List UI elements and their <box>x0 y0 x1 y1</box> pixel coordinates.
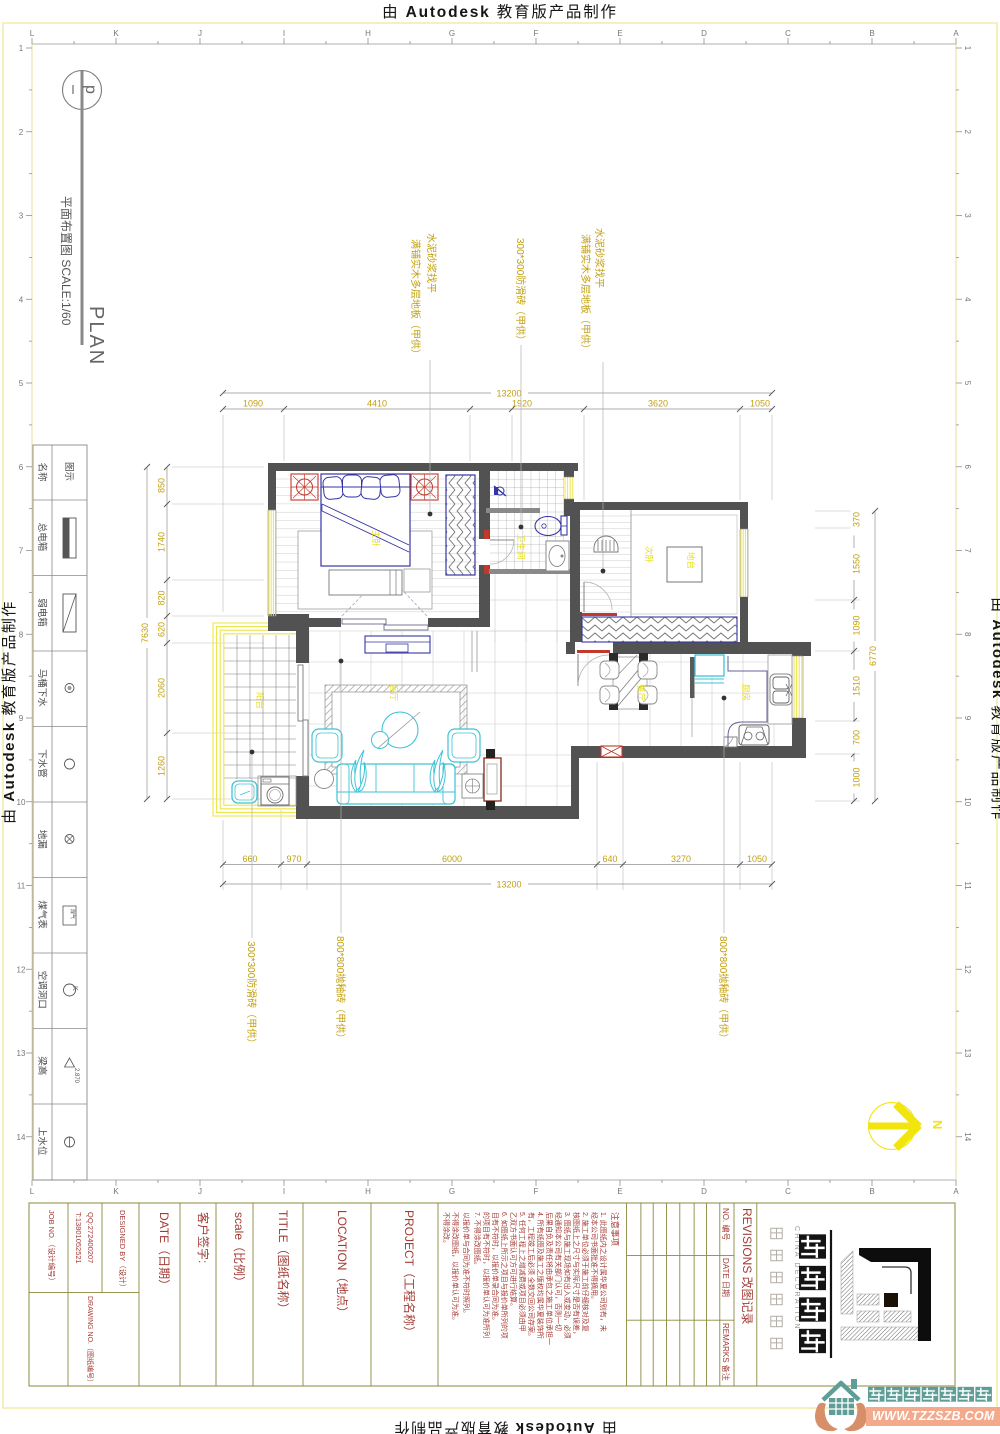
svg-text:次卧: 次卧 <box>644 546 654 564</box>
svg-text:1: 1 <box>963 46 972 51</box>
svg-text:1050: 1050 <box>747 854 767 864</box>
svg-text:T:13801052521: T:13801052521 <box>74 1212 83 1264</box>
svg-text:3: 3 <box>963 213 972 218</box>
svg-text:4: 4 <box>963 297 972 302</box>
svg-text:1260: 1260 <box>157 756 167 776</box>
svg-text:经本公司书面批准不得摘用。: 经本公司书面批准不得摘用。 <box>590 1212 599 1303</box>
svg-text:G: G <box>449 1187 455 1196</box>
svg-text:13: 13 <box>963 1049 972 1058</box>
svg-text:2: 2 <box>963 130 972 135</box>
svg-text:空调洞口: 空调洞口 <box>36 971 48 1009</box>
svg-text:C: C <box>785 1187 791 1196</box>
svg-text:厨房: 厨房 <box>741 684 751 701</box>
svg-text:1090: 1090 <box>852 615 862 635</box>
svg-text:J: J <box>198 1187 202 1196</box>
svg-text:6000: 6000 <box>442 854 462 864</box>
svg-text:D: D <box>701 29 707 38</box>
svg-text:5. 任何工程上之增减费或项目必须由甲: 5. 任何工程上之增减费或项目必须由甲 <box>518 1212 527 1332</box>
svg-text:B: B <box>869 1187 874 1196</box>
svg-text:G: G <box>449 29 455 38</box>
svg-text:CHINA DECORATION: CHINA DECORATION <box>793 1226 800 1331</box>
svg-text:E: E <box>617 1187 622 1196</box>
svg-text:640: 640 <box>602 854 617 864</box>
svg-text:乙双方书面认可方可进行结算。: 乙双方书面认可方可进行结算。 <box>509 1212 518 1310</box>
svg-text:DATE 日期: DATE 日期 <box>721 1258 730 1297</box>
svg-text:JOB NO.（设计编号）: JOB NO.（设计编号） <box>47 1210 57 1285</box>
svg-text:有，工程竣工后必须 全数交回公司存案。: 有，工程竣工后必须 全数交回公司存案。 <box>527 1212 536 1340</box>
svg-text:弱电箱: 弱电箱 <box>36 598 48 627</box>
svg-text:11: 11 <box>963 881 972 890</box>
svg-text:马桶下水: 马桶下水 <box>36 669 48 708</box>
svg-text:3: 3 <box>19 212 24 221</box>
svg-text:地台: 地台 <box>686 552 696 569</box>
svg-text:K: K <box>113 29 119 38</box>
svg-text:下水管: 下水管 <box>36 749 48 778</box>
svg-text:客厅: 客厅 <box>389 684 399 702</box>
svg-text:800*800抛釉砖（甲供）: 800*800抛釉砖（甲供） <box>334 936 347 1043</box>
svg-text:2. 施工单位必须于施工前仔细核对及复: 2. 施工单位必须于施工前仔细核对及复 <box>581 1212 590 1332</box>
svg-text:5: 5 <box>19 379 24 388</box>
svg-text:PLAN: PLAN <box>85 306 107 366</box>
svg-text:I: I <box>283 29 285 38</box>
svg-text:14: 14 <box>963 1132 972 1141</box>
svg-text:7: 7 <box>963 548 972 553</box>
svg-text:1: 1 <box>19 44 24 53</box>
svg-text:12: 12 <box>17 965 26 974</box>
svg-text:目有不符时，以报价单录合同为准。: 目有不符时，以报价单录合同为准。 <box>491 1212 500 1324</box>
svg-text:核图纸上之尺寸与实际尺寸是否有误差，: 核图纸上之尺寸与实际尺寸是否有误差， <box>572 1212 581 1338</box>
svg-text:注意事项: 注意事项 <box>610 1212 620 1247</box>
svg-text:1510: 1510 <box>852 676 862 696</box>
svg-text:6: 6 <box>963 465 972 470</box>
svg-text:梁高: 梁高 <box>36 1056 48 1075</box>
svg-text:卫生间: 卫生间 <box>516 534 526 560</box>
svg-text:13200: 13200 <box>496 880 521 890</box>
svg-text:平面布置图 SCALE:1/60: 平面布置图 SCALE:1/60 <box>59 196 73 326</box>
svg-text:13200: 13200 <box>496 389 521 399</box>
svg-text:餐厅: 餐厅 <box>636 684 646 702</box>
svg-text:REVISIONS 改图记录: REVISIONS 改图记录 <box>740 1208 754 1325</box>
svg-text:H: H <box>365 1187 371 1196</box>
svg-text:由 Autodesk 教育版产品制作: 由 Autodesk 教育版产品制作 <box>989 597 1000 821</box>
svg-text:4. 所有纸图及施工之版权均属华夏装饰所: 4. 所有纸图及施工之版权均属华夏装饰所 <box>536 1212 545 1339</box>
svg-text:A: A <box>953 1187 959 1196</box>
svg-text:阳台: 阳台 <box>255 692 265 709</box>
svg-text:5: 5 <box>963 381 972 386</box>
svg-text:水泥砂浆找平: 水泥砂浆找平 <box>425 233 438 293</box>
svg-text:2: 2 <box>19 128 24 137</box>
svg-text:300*300防滑砖（甲供）: 300*300防滑砖（甲供） <box>245 941 258 1048</box>
svg-text:970: 970 <box>286 854 301 864</box>
svg-text:L: L <box>30 1187 35 1196</box>
svg-text:11: 11 <box>17 882 26 891</box>
svg-text:满铺实木多层地板（甲供）: 满铺实木多层地板（甲供） <box>409 239 422 359</box>
svg-text:1920: 1920 <box>512 399 532 409</box>
svg-text:地漏: 地漏 <box>36 830 48 849</box>
svg-text:7. 不得涂改图纸。: 7. 不得涂改图纸。 <box>473 1212 482 1269</box>
svg-text:9: 9 <box>19 714 24 723</box>
svg-text:1000: 1000 <box>852 767 862 787</box>
svg-text:F: F <box>534 29 539 38</box>
svg-text:由 Autodesk 教育版产品制作: 由 Autodesk 教育版产品制作 <box>393 1419 617 1434</box>
svg-text:DATE（日期）: DATE（日期） <box>157 1212 171 1291</box>
svg-text:700: 700 <box>852 730 862 745</box>
svg-text:D: D <box>701 1187 707 1196</box>
svg-text:6: 6 <box>19 463 24 472</box>
svg-text:660: 660 <box>242 854 257 864</box>
svg-text:1740: 1740 <box>157 532 167 552</box>
svg-text:满铺实木多层地板（甲供）: 满铺实木多层地板（甲供） <box>579 234 592 354</box>
svg-text:8: 8 <box>963 632 972 637</box>
svg-text:DRAWING NO.（图纸编号）: DRAWING NO.（图纸编号） <box>86 1296 95 1386</box>
svg-text:LOCATION（地点）: LOCATION（地点） <box>335 1210 349 1318</box>
svg-text:由 Autodesk 教育版产品制作: 由 Autodesk 教育版产品制作 <box>1 600 18 824</box>
svg-text:800*800抛釉砖（甲供）: 800*800抛釉砖（甲供） <box>717 936 730 1043</box>
svg-text:的项目有不符时，以报价单认可为准所列: 的项目有不符时，以报价单认可为准所列 <box>482 1212 491 1338</box>
svg-text:K: K <box>113 1187 119 1196</box>
svg-text:主卧: 主卧 <box>371 530 381 548</box>
svg-text:1090: 1090 <box>243 399 263 409</box>
svg-text:不得涂改图纸，以报价单认可为准。: 不得涂改图纸，以报价单认可为准。 <box>451 1212 460 1324</box>
svg-text:TITLE（图纸名称）: TITLE（图纸名称） <box>276 1210 291 1315</box>
svg-text:p: p <box>82 85 99 94</box>
svg-text:3620: 3620 <box>648 399 668 409</box>
svg-text:1550: 1550 <box>852 554 862 574</box>
svg-text:图示: 图示 <box>63 462 74 481</box>
svg-text:J: J <box>198 29 202 38</box>
svg-text:3270: 3270 <box>671 854 691 864</box>
svg-text:820: 820 <box>157 590 167 605</box>
svg-text:DESIGNED BY（设计）: DESIGNED BY（设计） <box>118 1210 128 1291</box>
svg-text:H: H <box>365 29 371 38</box>
svg-text:2060: 2060 <box>157 678 167 698</box>
svg-text:PROJECT（工程名称）: PROJECT（工程名称） <box>402 1210 417 1338</box>
svg-text:7630: 7630 <box>140 623 150 643</box>
svg-text:后果自负及责任将由承包之施工单位承担一: 后果自负及责任将由承包之施工单位承担一 <box>545 1212 554 1345</box>
svg-text:7: 7 <box>19 547 24 556</box>
svg-text:WWW.TZZSZB.COM: WWW.TZZSZB.COM <box>872 1409 995 1423</box>
svg-text:客户签字:: 客户签字: <box>196 1212 211 1263</box>
svg-text:300*300防滑砖（甲供）: 300*300防滑砖（甲供） <box>514 238 527 345</box>
svg-text:经通知本公司有关部门认可，否则一切: 经通知本公司有关部门认可，否则一切 <box>554 1212 563 1331</box>
svg-text:4: 4 <box>19 295 24 304</box>
svg-text:14: 14 <box>17 1133 26 1142</box>
svg-text:K: K <box>71 986 78 991</box>
svg-text:水泥砂浆找平: 水泥砂浆找平 <box>593 228 606 288</box>
svg-text:4410: 4410 <box>367 399 387 409</box>
svg-text:E: E <box>617 29 622 38</box>
svg-text:以报价单与合同为准不符时照列。: 以报价单与合同为准不符时照列。 <box>462 1212 471 1317</box>
svg-text:6. 如图纸上所示之项目与报价单所列的项: 6. 如图纸上所示之项目与报价单所列的项 <box>500 1212 509 1339</box>
svg-text:370: 370 <box>852 512 862 527</box>
svg-text:煤气: 煤气 <box>69 909 76 919</box>
svg-text:620: 620 <box>157 622 167 637</box>
svg-text:F: F <box>534 1187 539 1196</box>
svg-text:N: N <box>930 1120 945 1129</box>
svg-text:A: A <box>953 29 959 38</box>
svg-text:C: C <box>785 29 791 38</box>
svg-text:scale（比例）: scale（比例） <box>232 1212 246 1288</box>
svg-text:12: 12 <box>963 965 972 974</box>
svg-text:2.870: 2.870 <box>73 1068 79 1084</box>
svg-text:6770: 6770 <box>868 646 878 666</box>
svg-text:REMARKS 备注: REMARKS 备注 <box>721 1323 731 1381</box>
svg-text:上水位: 上水位 <box>36 1127 48 1156</box>
svg-text:NO. 编号: NO. 编号 <box>721 1208 731 1240</box>
svg-text:850: 850 <box>157 478 167 493</box>
svg-text:I: I <box>283 1187 285 1196</box>
svg-text:B: B <box>869 29 874 38</box>
svg-text:3. 图纸与施工现场如有出入或变动，必须: 3. 图纸与施工现场如有出入或变动，必须 <box>563 1212 572 1339</box>
svg-text:不得涂改。: 不得涂改。 <box>442 1212 451 1247</box>
svg-text:QQ:272400207: QQ:272400207 <box>86 1212 95 1263</box>
svg-text:8: 8 <box>19 630 24 639</box>
svg-text:由 Autodesk 教育版产品制作: 由 Autodesk 教育版产品制作 <box>382 3 618 21</box>
svg-text:煤气表: 煤气表 <box>36 900 48 929</box>
svg-text:L: L <box>30 29 35 38</box>
svg-text:总电箱: 总电箱 <box>36 523 48 552</box>
svg-text:13: 13 <box>17 1049 26 1058</box>
svg-text:10: 10 <box>963 797 972 806</box>
svg-text:名称: 名称 <box>36 463 48 483</box>
svg-text:9: 9 <box>963 716 972 721</box>
svg-text:1050: 1050 <box>750 399 770 409</box>
svg-text:1. 此图纸内之设计属华夏公司别有，未: 1. 此图纸内之设计属华夏公司别有，未 <box>599 1212 608 1332</box>
